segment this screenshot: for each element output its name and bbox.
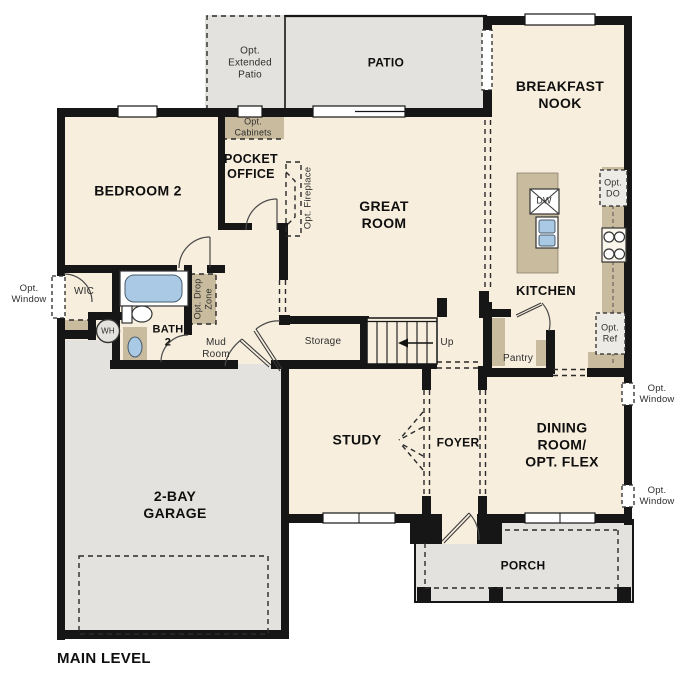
toilet-icon [132,306,152,322]
opt-window-left-icon [52,276,65,318]
bath-sink-icon [128,337,142,357]
bathtub-icon [125,275,182,302]
label-opt-window-left: Opt. Window [12,283,47,305]
label-main-level: MAIN LEVEL [57,650,151,668]
floor-plan: PATIO Opt. Extended Patio BREAKFAST NOOK… [0,0,687,687]
label-bedroom-2: BEDROOM 2 [94,182,182,199]
label-opt-fireplace: Opt. Fireplace [302,167,313,229]
label-storage: Storage [305,336,341,348]
nook-patio-opt-door [482,30,492,90]
label-bath-2: BATH 2 [153,324,184,351]
label-kitchen: KITCHEN [516,283,576,299]
label-mud-room: Mud Room [202,337,229,361]
porch-post [489,587,503,601]
label-opt-ref: Opt. Ref [601,322,619,343]
label-opt-cabinets: Opt. Cabinets [234,116,271,137]
label-up: Up [440,337,453,349]
label-dining-room: DINING ROOM/ OPT. FLEX [525,419,599,470]
label-opt-drop-zone: Opt. Drop Zone [192,279,213,320]
label-wh: WH [101,326,115,335]
porch-post [417,587,431,601]
label-foyer: FOYER [437,436,480,451]
label-opt-window-right-upper: Opt. Window [640,383,675,405]
opt-window-right-lower-icon [622,485,634,507]
label-great-room: GREAT ROOM [359,198,408,232]
bedroom-window [118,106,157,117]
label-porch: PORCH [501,559,546,574]
kitchen-counter-return [588,352,626,370]
label-breakfast-nook: BREAKFAST NOOK [516,78,604,112]
label-wic: WIC [74,286,94,298]
porch-post [617,587,631,601]
toilet-tank-icon [122,306,132,323]
breakfast-nook-window [525,14,595,25]
label-dw: DW [536,196,551,207]
opt-window-right-upper-icon [622,383,634,405]
label-patio: PATIO [368,56,404,71]
label-opt-extended-patio: Opt. Extended Patio [228,45,272,80]
label-pocket-office: POCKET OFFICE [224,152,278,183]
pocket-office-window [238,106,262,117]
label-opt-window-right-lower: Opt. Window [640,485,675,507]
label-study: STUDY [333,431,382,448]
label-garage: 2-BAY GARAGE [143,488,206,522]
stairs [367,318,437,364]
label-opt-do: Opt. DO [604,177,622,198]
label-pantry: Pantry [503,353,533,365]
